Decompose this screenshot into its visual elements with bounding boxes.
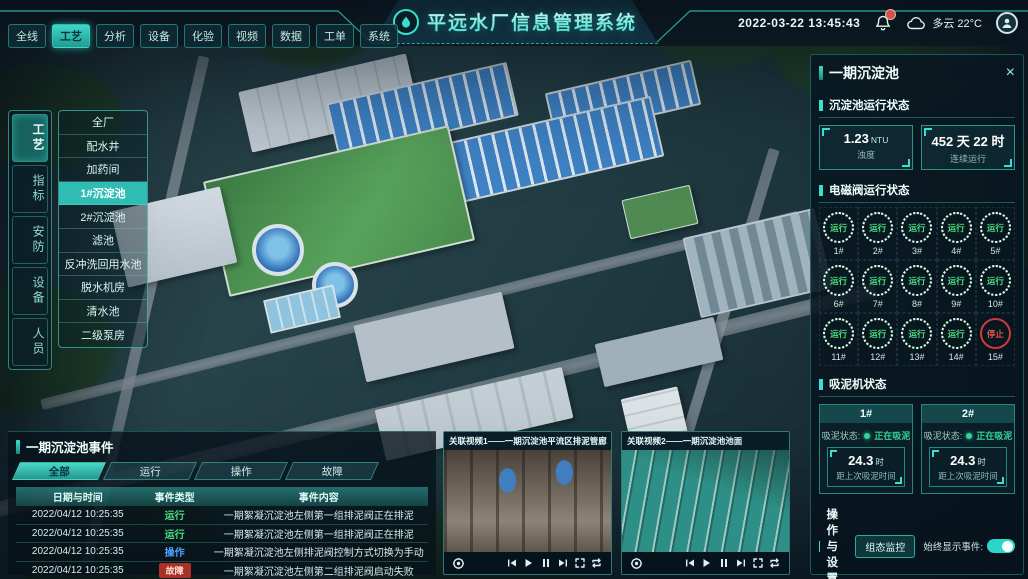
mud-timer-card: 24.3时 距上次吸泥时间 — [827, 447, 905, 487]
col-header-content: 事件内容 — [210, 489, 428, 504]
valve-gauge-ring: 运行 — [823, 212, 854, 243]
notification-bell-icon[interactable] — [874, 14, 892, 32]
valve-id: 1# — [834, 246, 844, 256]
facility-menu-label: 2#沉淀池 — [80, 209, 125, 225]
video-thumbnail[interactable] — [444, 450, 611, 552]
uptime-value: 452 天 22 时 — [924, 131, 1012, 150]
valve-status: 运行 — [980, 265, 1011, 296]
event-time: 2022/04/12 10:25:35 — [16, 546, 140, 557]
mud-machine-card: 2# 吸泥状态: 正在吸泥 24.3时 距上次吸泥时间 — [921, 404, 1015, 494]
nav-tab-label: 数据 — [280, 31, 302, 43]
weather-label: 多云 22°C — [932, 15, 982, 31]
valve-gauge-ring: 运行 — [862, 265, 893, 296]
valve-gauge[interactable]: 运行 2# — [858, 207, 897, 260]
valve-gauge[interactable]: 停止 15# — [976, 313, 1015, 366]
nav-tab[interactable]: 工单 — [316, 24, 354, 48]
valve-gauge[interactable]: 运行 6# — [819, 260, 858, 313]
table-row[interactable]: 2022/04/12 10:25:35 运行 一期絮凝沉淀池左侧第一组排泥阀正在… — [16, 525, 428, 544]
facility-menu-label: 脱水机房 — [81, 279, 125, 295]
status-dot-icon — [864, 433, 870, 439]
event-type-cell: 操作 — [140, 544, 210, 559]
rail-tab-label: 人员 — [13, 327, 47, 357]
facility-menu-item[interactable]: 配水井 — [59, 135, 147, 159]
facility-menu-item[interactable]: 反冲洗回用水池 — [59, 253, 147, 277]
section-valves: 电磁阀运行状态 — [819, 178, 1015, 203]
nav-tab[interactable]: 工艺 — [52, 24, 90, 48]
nav-tab[interactable]: 系统 — [360, 24, 398, 48]
valve-gauge[interactable]: 运行 14# — [937, 313, 976, 366]
table-row[interactable]: 2022/04/12 10:25:35 运行 一期絮凝沉淀池左侧第一组排泥阀正在… — [16, 506, 428, 525]
title-banner: 平远水厂信息管理系统 — [372, 0, 658, 44]
valve-gauge[interactable]: 运行 9# — [937, 260, 976, 313]
show-events-label: 始终显示事件: — [923, 539, 983, 553]
table-row[interactable]: 2022/04/12 10:25:35 操作 一期絮凝沉淀池左侧排泥阀控制方式切… — [16, 543, 428, 562]
events-tab[interactable]: 全部 — [12, 462, 106, 480]
valve-status: 运行 — [941, 212, 972, 243]
rail-tab[interactable]: 工艺 — [12, 114, 48, 162]
col-header-type: 事件类型 — [140, 489, 210, 504]
facility-menu-label: 全厂 — [92, 114, 114, 130]
mud-status-label: 吸泥状态: — [924, 429, 963, 442]
turbidity-card: 1.23NTU 浊度 — [819, 125, 913, 170]
facility-menu-label: 1#沉淀池 — [80, 185, 125, 201]
nav-tab-label: 视频 — [236, 31, 258, 43]
facility-menu-label: 清水池 — [87, 303, 120, 319]
nav-tab[interactable]: 全线 — [8, 24, 46, 48]
weather: 多云 22°C — [906, 15, 982, 31]
facility-menu-label: 加药间 — [87, 161, 120, 177]
event-type-badge: 运行 — [165, 530, 185, 541]
valve-id: 11# — [831, 352, 845, 362]
events-tab-label: 运行 — [140, 464, 161, 479]
mud-status-label: 吸泥状态: — [822, 429, 861, 442]
accent-bar — [16, 440, 20, 454]
turbidity-label: 浊度 — [822, 148, 910, 161]
valve-gauge[interactable]: 运行 8# — [897, 260, 936, 313]
valve-gauge[interactable]: 运行 5# — [976, 207, 1015, 260]
valve-id: 5# — [990, 246, 1000, 256]
nav-tab[interactable]: 设备 — [140, 24, 178, 48]
mud-timer-caption: 距上次吸泥时间 — [828, 470, 904, 482]
valve-id: 9# — [951, 299, 961, 309]
top-header: 平远水厂信息管理系统 全线 工艺 分析 设备 — [0, 0, 1028, 46]
mud-timer-caption: 距上次吸泥时间 — [930, 470, 1006, 482]
valve-gauge-ring: 停止 — [980, 318, 1011, 349]
valve-gauge-ring: 运行 — [941, 318, 972, 349]
nav-tab-label: 设备 — [148, 31, 170, 43]
valve-id: 2# — [873, 246, 883, 256]
facility-menu-item[interactable]: 2#沉淀池 — [59, 205, 147, 229]
valve-id: 8# — [912, 299, 922, 309]
valve-gauge-ring: 运行 — [901, 212, 932, 243]
uptime-label: 连续运行 — [924, 152, 1012, 165]
rail-tab-label: 设备 — [13, 276, 47, 306]
pause-icon[interactable] — [537, 558, 554, 568]
events-tabs: 全部 运行 操作 故障 — [16, 462, 428, 480]
rail-tab-label: 工艺 — [13, 123, 47, 153]
uptime-card: 452 天 22 时 连续运行 — [921, 125, 1015, 170]
facility-menu-item[interactable]: 二级泵房 — [59, 323, 147, 347]
valve-id: 6# — [834, 299, 844, 309]
fullscreen-icon[interactable] — [749, 558, 766, 568]
valve-status: 运行 — [941, 265, 972, 296]
valve-status: 运行 — [823, 212, 854, 243]
valve-id: 3# — [912, 246, 922, 256]
mud-cards: 1# 吸泥状态: 正在吸泥 24.3时 距上次吸泥时间 2# 吸泥状态: — [819, 397, 1015, 498]
valve-grid: 运行 1# 运行 2# — [819, 203, 1015, 368]
valve-status: 运行 — [862, 318, 893, 349]
col-header-time: 日期与时间 — [16, 489, 140, 504]
event-type-badge: 故障 — [159, 563, 191, 578]
video-title: 关联视频1——一期沉淀池平流区排泥管廊 — [444, 432, 611, 450]
facility-menu-item[interactable]: 加药间 — [59, 158, 147, 182]
video-panels: 关联视频1——一期沉淀池平流区排泥管廊 — [443, 431, 790, 575]
valve-gauge-ring: 运行 — [980, 265, 1011, 296]
section-running-status: 沉淀池运行状态 — [819, 93, 1015, 118]
datetime: 2022-03-22 13:45:43 — [738, 16, 860, 30]
facility-menu: 全厂 配水井 加药间 1#沉淀池 2#沉淀池 滤池 反冲洗回用水池 — [58, 110, 148, 348]
nav-tab-label: 系统 — [368, 31, 390, 43]
valve-gauge-ring: 运行 — [862, 318, 893, 349]
loop-icon[interactable] — [588, 558, 605, 568]
section-operations: 操作与设置 — [819, 506, 847, 579]
facility-menu-item[interactable]: 滤池 — [59, 229, 147, 253]
valve-gauge[interactable]: 运行 11# — [819, 313, 858, 366]
facility-menu-label: 反冲洗回用水池 — [65, 256, 142, 272]
events-tab[interactable]: 故障 — [285, 462, 379, 480]
valve-gauge[interactable]: 运行 7# — [858, 260, 897, 313]
loop-icon[interactable] — [766, 558, 783, 568]
valve-gauge-ring: 运行 — [901, 318, 932, 349]
mud-timer-card: 24.3时 距上次吸泥时间 — [929, 447, 1007, 487]
table-row[interactable]: 2022/04/12 10:25:35 故障 一期絮凝沉淀池左侧第二组排泥阀启动… — [16, 562, 428, 579]
valve-gauge[interactable]: 运行 4# — [937, 207, 976, 260]
nav-tab[interactable]: 化验 — [184, 24, 222, 48]
event-content: 一期絮凝沉淀池左侧排泥阀控制方式切换为手动 — [210, 544, 428, 559]
event-content: 一期絮凝沉淀池左侧第一组排泥阀正在排泥 — [210, 507, 428, 522]
facility-menu-label: 二级泵房 — [81, 327, 125, 343]
skip-forward-icon[interactable] — [732, 558, 749, 568]
rail-tab[interactable]: 安防 — [12, 216, 48, 264]
events-tab-label: 故障 — [322, 464, 343, 479]
valve-id: 4# — [951, 246, 961, 256]
valve-status: 运行 — [980, 212, 1011, 243]
video-controls — [622, 552, 789, 574]
fullscreen-icon[interactable] — [571, 558, 588, 568]
valve-gauge[interactable]: 运行 13# — [897, 313, 936, 366]
valve-gauge[interactable]: 运行 1# — [819, 207, 858, 260]
events-tab[interactable]: 运行 — [103, 462, 197, 480]
play-icon[interactable] — [520, 558, 537, 568]
valve-gauge-ring: 运行 — [823, 265, 854, 296]
valve-status: 运行 — [862, 265, 893, 296]
valve-status: 运行 — [823, 265, 854, 296]
valve-gauge[interactable]: 运行 12# — [858, 313, 897, 366]
ptz-joystick-icon[interactable] — [628, 557, 645, 570]
accent-bar — [819, 66, 823, 80]
skip-forward-icon[interactable] — [554, 558, 571, 568]
valve-status: 停止 — [980, 318, 1011, 349]
facility-menu-item[interactable]: 全厂 — [59, 111, 147, 135]
mud-timer-value: 24.3时 — [930, 453, 1006, 468]
status-dot-icon — [966, 433, 972, 439]
valve-gauge-ring: 运行 — [823, 318, 854, 349]
valve-status: 运行 — [862, 212, 893, 243]
facility-menu-item[interactable]: 清水池 — [59, 300, 147, 324]
event-type-cell: 运行 — [140, 507, 210, 522]
ptz-joystick-icon[interactable] — [450, 557, 467, 570]
events-tab-label: 全部 — [49, 464, 70, 479]
valve-id: 7# — [873, 299, 883, 309]
facility-menu-item[interactable]: 脱水机房 — [59, 276, 147, 300]
events-title-text: 一期沉淀池事件 — [26, 437, 114, 456]
nav-tab[interactable]: 分析 — [96, 24, 134, 48]
app-title: 平远水厂信息管理系统 — [427, 8, 637, 35]
valve-gauge-ring: 运行 — [862, 212, 893, 243]
mud-status-value: 正在吸泥 — [874, 429, 910, 442]
mud-status-row: 吸泥状态: 正在吸泥 — [820, 423, 912, 447]
rail-tab-label: 安防 — [13, 225, 47, 255]
sedimentation-panel: 一期沉淀池 × 沉淀池运行状态 1.23NTU 浊度 452 天 22 时 连续… — [810, 54, 1024, 575]
section-mud-suction: 吸泥机状态 — [819, 372, 1015, 397]
rail-tab[interactable]: 人员 — [12, 318, 48, 366]
mud-machine-card: 1# 吸泥状态: 正在吸泥 24.3时 距上次吸泥时间 — [819, 404, 913, 494]
facility-menu-item[interactable]: 1#沉淀池 — [59, 182, 147, 206]
valve-status: 运行 — [941, 318, 972, 349]
events-table-header: 日期与时间 事件类型 事件内容 — [16, 487, 428, 506]
nav-tab-label: 化验 — [192, 31, 214, 43]
mud-status-value: 正在吸泥 — [976, 429, 1012, 442]
cloud-icon — [906, 16, 926, 30]
events-panel: 一期沉淀池事件 全部 运行 操作 故障 日期与时间 — [8, 431, 436, 575]
events-table-body: 2022/04/12 10:25:35 运行 一期絮凝沉淀池左侧第一组排泥阀正在… — [16, 506, 428, 579]
turbidity-value: 1.23NTU — [822, 131, 910, 146]
panel-title-text: 一期沉淀池 — [829, 63, 899, 83]
scada-monitor-button[interactable]: 组态监控 — [855, 535, 915, 558]
nav-tab[interactable]: 视频 — [228, 24, 266, 48]
event-content: 一期絮凝沉淀池左侧第二组排泥阀启动失败 — [210, 563, 428, 578]
valve-gauge-ring: 运行 — [901, 265, 932, 296]
mud-timer-value: 24.3时 — [828, 453, 904, 468]
main-nav: 全线 工艺 分析 设备 化验 视频 — [8, 24, 398, 48]
valve-status: 运行 — [901, 318, 932, 349]
nav-tab-label: 工单 — [324, 31, 346, 43]
valve-gauge-ring: 运行 — [941, 265, 972, 296]
nav-tab-label: 全线 — [16, 31, 38, 43]
rail-tab[interactable]: 指标 — [12, 165, 48, 213]
dashboard: 平远水厂信息管理系统 全线 工艺 分析 设备 — [0, 0, 1028, 579]
pause-icon[interactable] — [715, 558, 732, 568]
nav-tab[interactable]: 数据 — [272, 24, 310, 48]
video-controls — [444, 552, 611, 574]
valve-gauge-ring: 运行 — [941, 212, 972, 243]
event-time: 2022/04/12 10:25:35 — [16, 528, 140, 539]
facility-menu-label: 配水井 — [87, 138, 120, 154]
event-type-cell: 运行 — [140, 526, 210, 541]
events-title: 一期沉淀池事件 — [16, 437, 428, 456]
valve-status: 运行 — [901, 212, 932, 243]
running-stats: 1.23NTU 浊度 452 天 22 时 连续运行 — [819, 118, 1015, 174]
rail-tab[interactable]: 设备 — [12, 267, 48, 315]
rail-tab-label: 指标 — [13, 174, 47, 204]
mud-machine-id: 1# — [820, 405, 912, 423]
valve-status: 运行 — [901, 265, 932, 296]
show-events-toggle-row: 始终显示事件: — [923, 539, 1015, 553]
valve-id: 15# — [988, 352, 1003, 362]
skip-back-icon[interactable] — [681, 558, 698, 568]
panel-title-row: 一期沉淀池 × — [819, 61, 1015, 89]
mud-timer-unit: 时 — [875, 457, 884, 467]
valve-id: 12# — [870, 352, 885, 362]
video-panel: 关联视频2——一期沉淀池池面 — [621, 431, 790, 575]
events-tab-label: 操作 — [231, 464, 252, 479]
event-type-cell: 故障 — [140, 563, 210, 578]
event-type-badge: 运行 — [165, 511, 185, 522]
valve-gauge[interactable]: 运行 3# — [897, 207, 936, 260]
show-events-toggle[interactable] — [987, 539, 1015, 553]
nav-tab-label: 分析 — [104, 31, 126, 43]
notification-badge — [885, 9, 896, 20]
play-icon[interactable] — [698, 558, 715, 568]
event-content: 一期絮凝沉淀池左侧第一组排泥阀正在排泥 — [210, 526, 428, 541]
mud-status-row: 吸泥状态: 正在吸泥 — [922, 423, 1014, 447]
user-avatar-icon[interactable] — [996, 12, 1018, 34]
events-tab[interactable]: 操作 — [194, 462, 288, 480]
event-type-badge: 操作 — [165, 548, 185, 559]
video-title: 关联视频2——一期沉淀池池面 — [622, 432, 789, 450]
event-time: 2022/04/12 10:25:35 — [16, 565, 140, 576]
panel-title: 一期沉淀池 — [819, 63, 899, 83]
video-panel: 关联视频1——一期沉淀池平流区排泥管廊 — [443, 431, 612, 575]
header-right: 2022-03-22 13:45:43 多云 22°C — [738, 12, 1018, 34]
valve-id: 10# — [988, 299, 1003, 309]
toggle-knob — [1002, 541, 1013, 552]
valve-status: 运行 — [823, 318, 854, 349]
mud-timer-unit: 时 — [977, 457, 986, 467]
event-time: 2022/04/12 10:25:35 — [16, 509, 140, 520]
valve-gauge[interactable]: 运行 10# — [976, 260, 1015, 313]
skip-back-icon[interactable] — [503, 558, 520, 568]
valve-id: 13# — [909, 352, 924, 362]
operations-row: 操作与设置 组态监控 始终显示事件: — [819, 498, 1015, 579]
turbidity-unit: NTU — [871, 135, 888, 145]
facility-menu-label: 滤池 — [92, 232, 114, 248]
mud-machine-id: 2# — [922, 405, 1014, 423]
left-rail: 工艺 指标 安防 设备 人员 — [8, 110, 52, 370]
nav-tab-label: 工艺 — [60, 31, 82, 43]
valve-gauge-ring: 运行 — [980, 212, 1011, 243]
close-icon[interactable]: × — [1006, 65, 1015, 81]
video-thumbnail[interactable] — [622, 450, 789, 552]
valve-id: 14# — [949, 352, 964, 362]
